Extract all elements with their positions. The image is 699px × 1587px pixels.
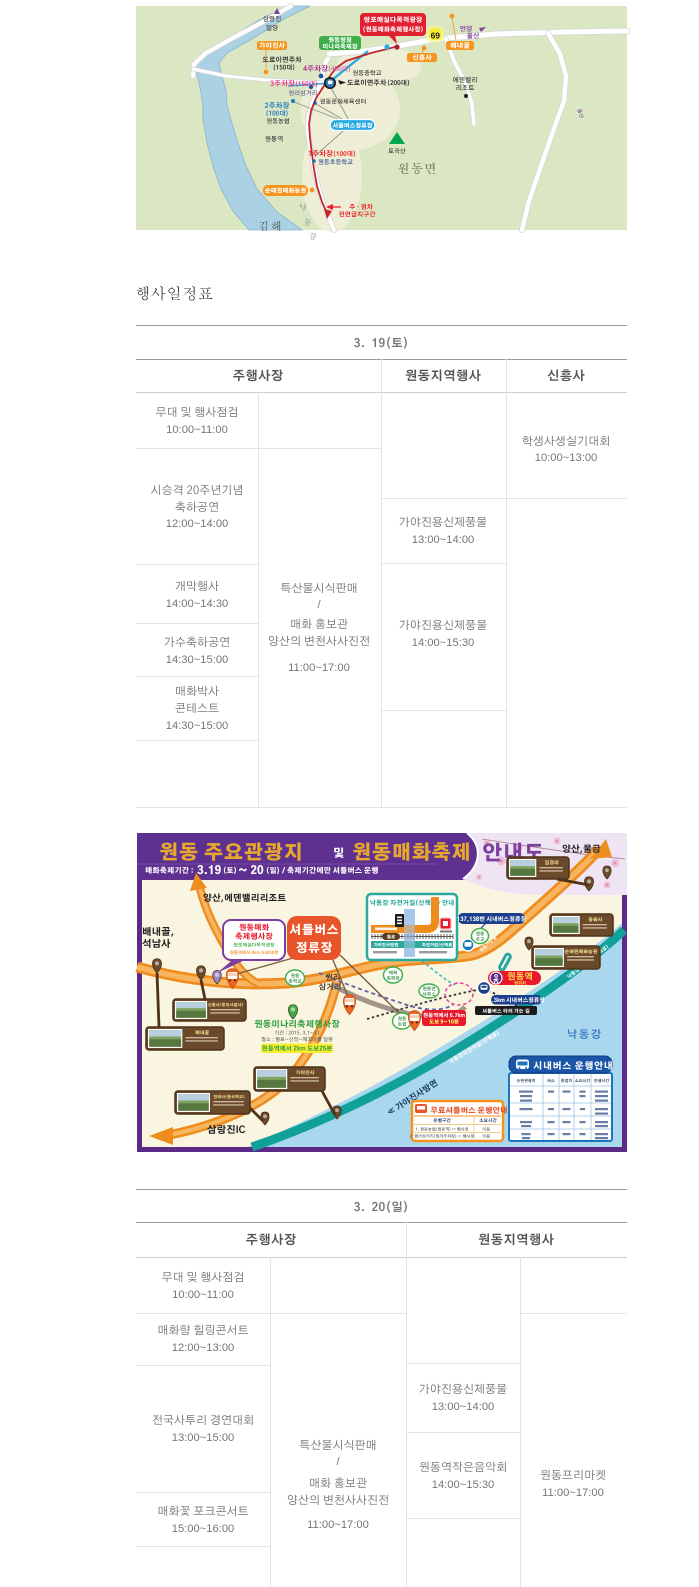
svg-text:10:00~13:00: 10:00~13:00 [535, 452, 598, 464]
svg-text:10:00~11:00: 10:00~11:00 [172, 1289, 234, 1301]
svg-text:/: / [336, 1456, 340, 1468]
svg-text:15:00~16:00: 15:00~16:00 [172, 1523, 235, 1535]
svg-text:13:00~14:00: 13:00~14:00 [432, 1401, 495, 1413]
svg-text:13:00~14:00: 13:00~14:00 [412, 534, 475, 546]
svg-text:/: / [317, 599, 321, 611]
svg-text:14:00~15:30: 14:00~15:30 [432, 1479, 495, 1491]
svg-text:13:00~15:00: 13:00~15:00 [172, 1432, 235, 1444]
svg-text:14:30~15:00: 14:30~15:00 [166, 654, 229, 666]
svg-text:14:00~15:30: 14:00~15:30 [412, 637, 475, 649]
svg-text:10:00~11:00: 10:00~11:00 [166, 424, 228, 436]
svg-text:14:00~14:30: 14:00~14:30 [166, 598, 229, 610]
svg-text:11:00~17:00: 11:00~17:00 [307, 1519, 369, 1531]
svg-text:11:00~17:00: 11:00~17:00 [288, 662, 350, 674]
svg-text:12:00~14:00: 12:00~14:00 [166, 518, 229, 530]
svg-text:14:30~15:00: 14:30~15:00 [166, 720, 229, 732]
svg-text:69: 69 [431, 31, 441, 41]
svg-text:12:00~13:00: 12:00~13:00 [172, 1342, 235, 1354]
svg-text:11:00~17:00: 11:00~17:00 [542, 1487, 604, 1499]
